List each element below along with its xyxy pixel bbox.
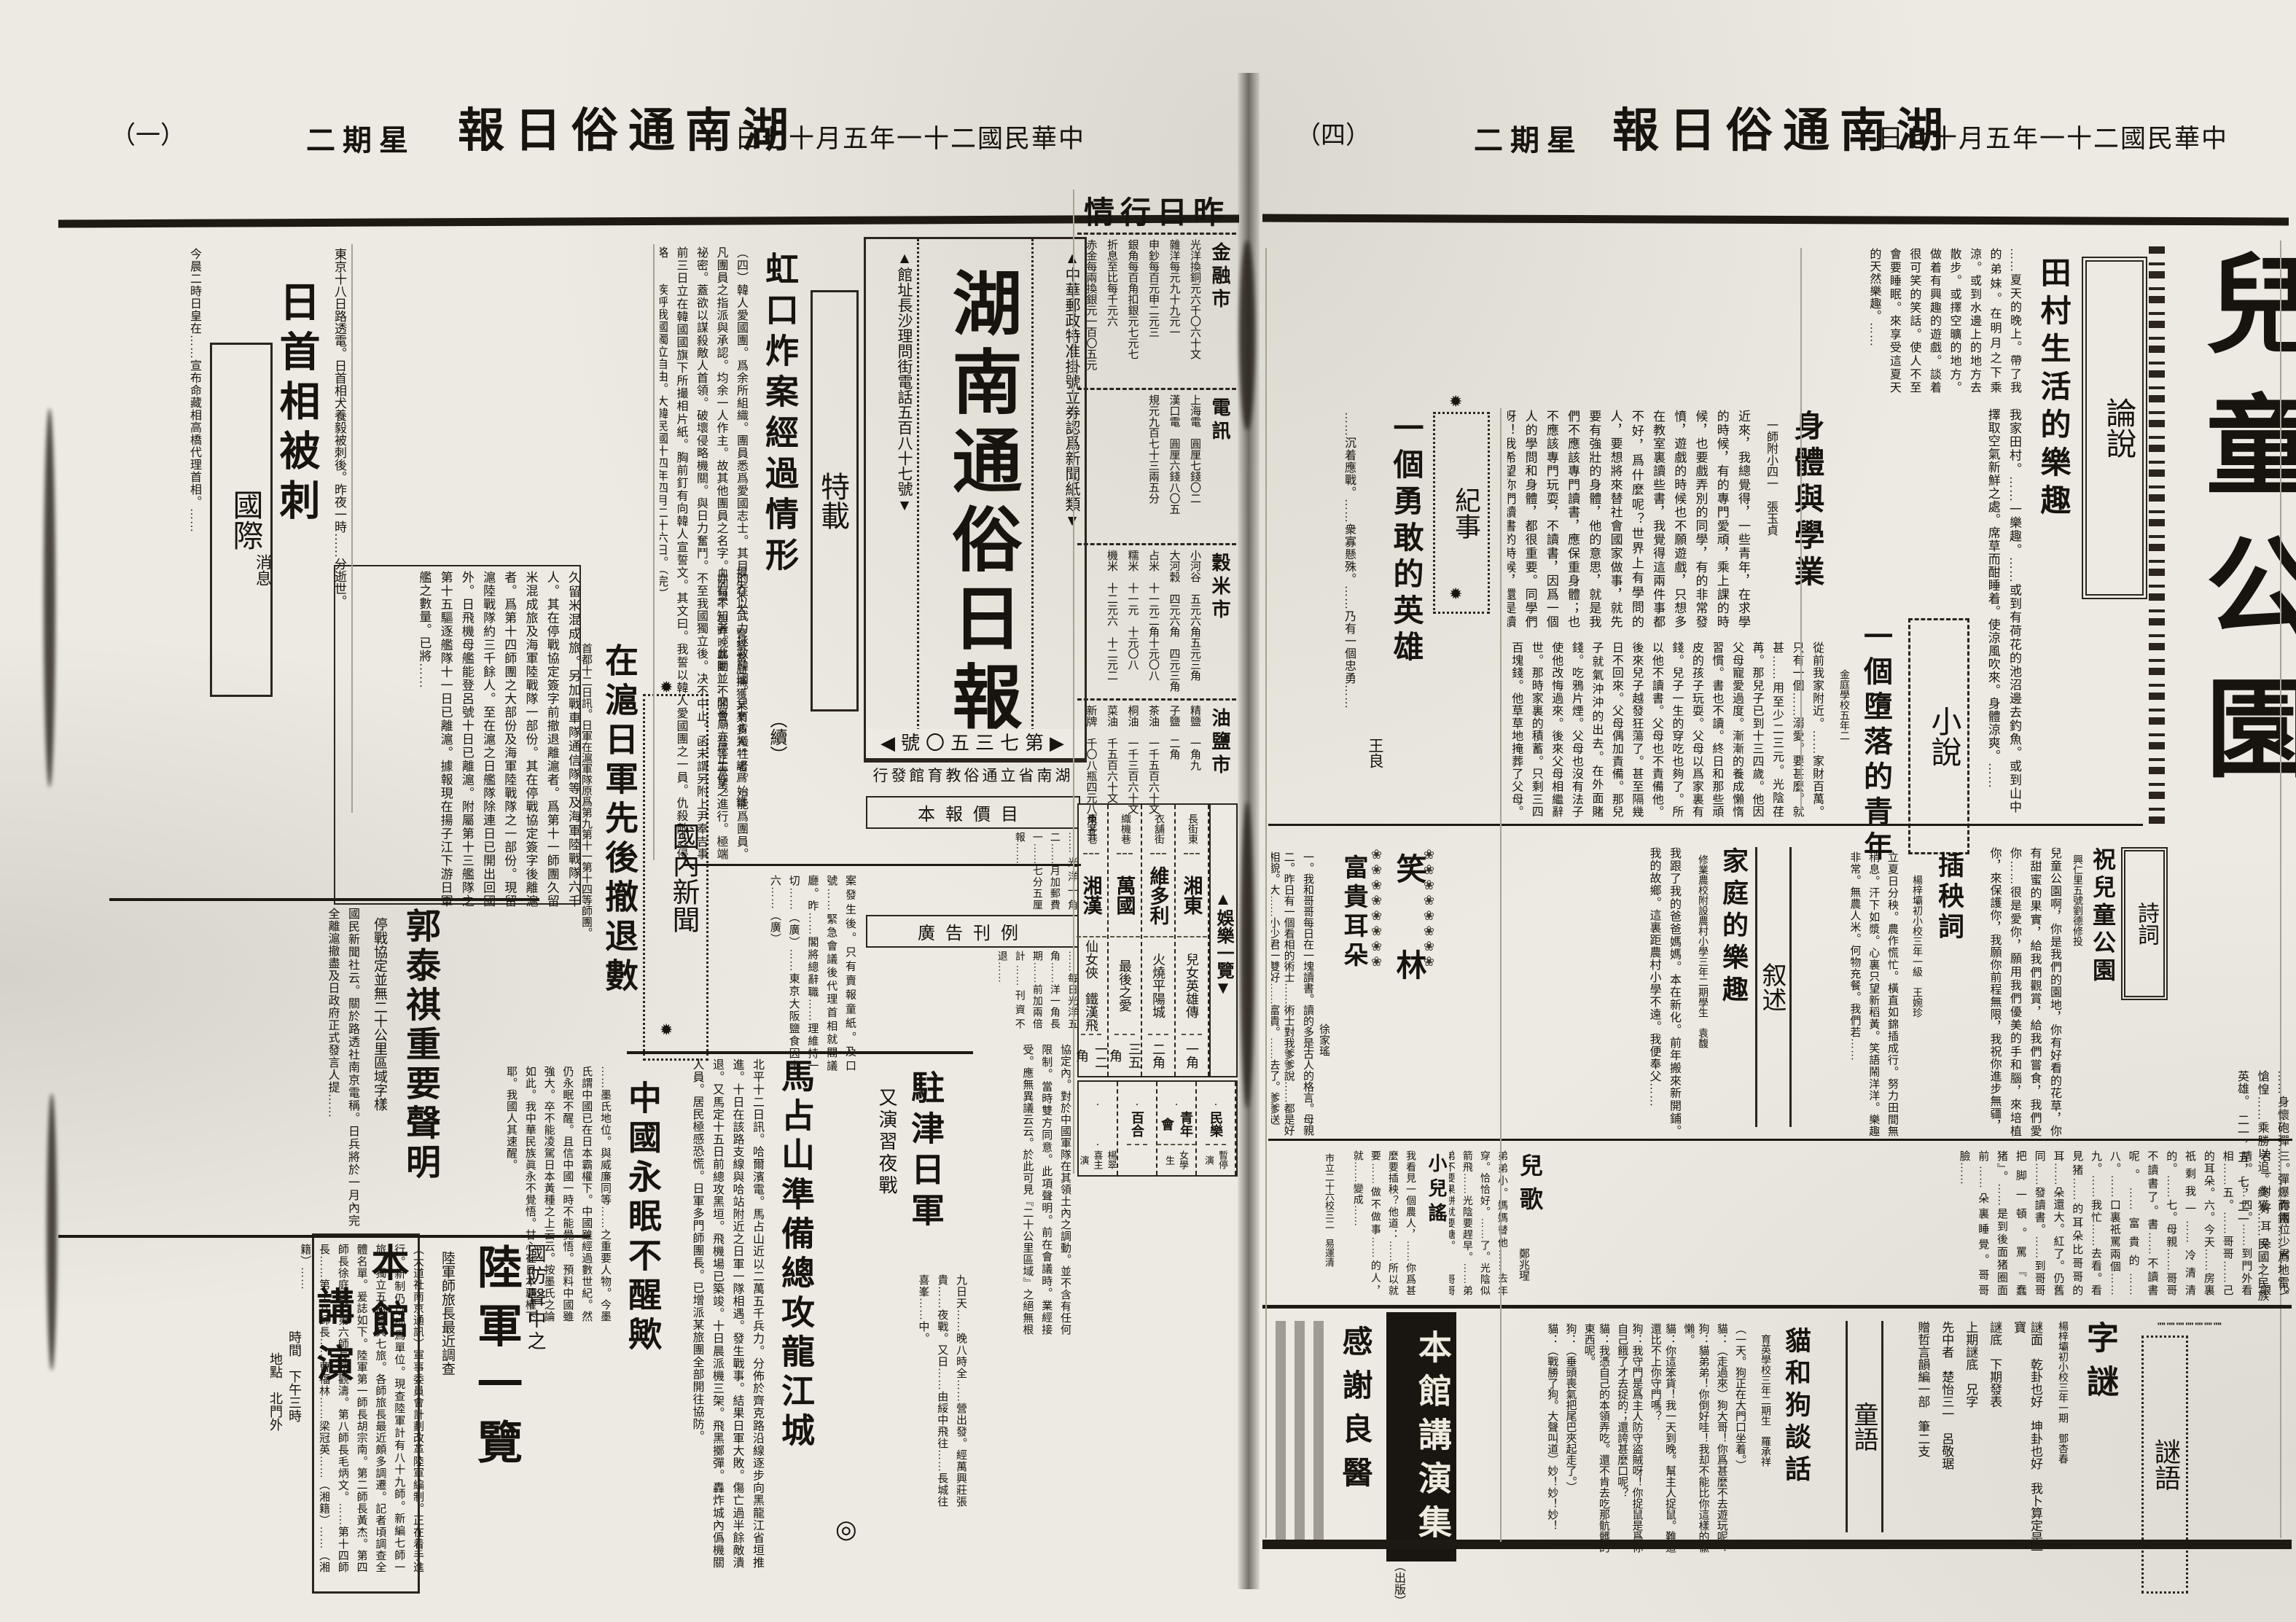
body-fallen-youth: 從前我家附近。……家財百萬。只有一個……溺愛。要甚麼。就甚……用至少二三元。光陰… <box>1507 642 1827 818</box>
masthead-issue-number: ◀號〇五三七第▶ <box>864 729 1087 760</box>
masthead-publisher: 行發館育教俗通立省南湖 <box>864 764 1082 786</box>
fold-smudge <box>1239 241 1255 430</box>
divider <box>1268 824 2143 826</box>
author-body-and-study: 一師附小四一 張玉貞 <box>1760 419 1778 631</box>
subhead-guo-taiqi: 停戰協定並無二十公里區域字樣 <box>368 917 388 1223</box>
lecture-time: 時間 下午三時 <box>285 1330 304 1584</box>
section-box-poetry: 詩詞 <box>2121 847 2168 1000</box>
divider <box>684 864 1081 866</box>
divider <box>109 898 539 901</box>
market-sections: 金融市 光洋換銅元六千〇六十文雜洋每元九十九元一申鈔每百元申二元三銀角每百角扣銀… <box>1077 233 1236 854</box>
section-box-child-talk: 童語 <box>1846 1321 1883 1532</box>
dialogue-line: 貓：（走過來）狗大哥！你爲甚麼不去遊玩呢？ <box>1714 1323 1729 1560</box>
market-section: 電訊 上海電 圓厘七錢〇二漢口電 圓厘六錢八〇五規元九百七十三兩五分 <box>1077 388 1236 543</box>
market-section-items: 光洋換銅元六千〇六十文雜洋每元九十九元一申鈔每百元申二元三銀角每百角扣銀元七元七… <box>1079 239 1205 383</box>
column-rule <box>1800 248 1802 813</box>
body-village-life-top: ……夏天的晚上。帶了我的弟妹。在明月之下乘涼。或到水邊上的地方去散步。或擇空曠的… <box>1270 248 2024 394</box>
divider <box>1268 1139 2292 1141</box>
lecture-place: 地點 北門外 <box>266 1352 285 1584</box>
humor-item: 二。昨日有一個看相的術士……術士對我爹爹說……都是好相貌。大……小少君一雙好……… <box>1271 851 1296 1137</box>
body-guo-taiqi-cont: 協定內。對於中國軍隊在其領土內之調動。並不含有任何限制。當時雙方同意。此項聲明。… <box>1017 1044 1074 1336</box>
headline-guo-taiqi-statement: 郭泰祺重要聲明 <box>394 908 445 1228</box>
show-title: 火燒平陽城 <box>1148 937 1168 1035</box>
market-section-label: 電訊 <box>1205 394 1235 539</box>
headline-character-riddle: 字謎 <box>2076 1321 2123 1423</box>
lecture-collection-ad: 本館講演集 <box>1386 1312 1456 1561</box>
dialogue-line: 狗：貓弟弟！你倒好哇！我却不能比你這樣的偸懶。 <box>1681 1323 1711 1560</box>
body-rice-planting-song: 立夏日分秧。農作慌忙。橫直如錦插成行。努力田間無稍息。汗下如漿。心裏只望新稻黃。… <box>1835 851 1901 1137</box>
venue-name: 青年會 <box>1157 1105 1196 1145</box>
headline-cat-dog-dialogue: 貓和狗談話 <box>1777 1327 1815 1575</box>
section-box-novel: 小說 <box>1908 618 1969 854</box>
riddle-lines: 謎面 乾卦也好 坤卦也好 我卜算定是一寶謎底 下期發表上期謎底 兄字先中者 楚怡… <box>1886 1321 2043 1558</box>
headline-hongkou-bomb-case: 虹口炸案經過情形 <box>755 252 803 703</box>
body-family-joy: 我跟了我的爸爸媽媽。本在新化。前年搬來新開鋪。我的故鄉。這裏距農村小學不遠。我便… <box>1510 847 1684 1137</box>
notice-block: 本報價目 ……光洋一角二……月加郵費一……七分五厘報…… 廣告刊例 ……每日光洋… <box>866 796 1080 1029</box>
column-rule <box>653 244 655 860</box>
lecture-title-b: 講演 <box>304 1287 359 1584</box>
market-section-items: 上海電 圓厘七錢〇二漢口電 圓厘六錢八〇五規元九百七十三兩五分 <box>1079 394 1205 539</box>
section-box-international: 國際 <box>210 343 273 697</box>
right-margin-rule <box>2280 241 2281 1538</box>
page-section-title-children-park: 兒童公園 <box>2171 248 2296 831</box>
show-title: 暫停演 <box>1201 1145 1230 1175</box>
body-guo-taiqi: 國民新聞社云。關於路透社南京電稱。日兵將於一月內完全離滬撤盡及日政府正式發言人提… <box>111 908 362 1227</box>
body-cat-dog-dialogue: （一天。狗正在大門口坐着。）貓：（走過來）狗大哥！你爲甚麼不去遊玩呢？狗：貓弟弟… <box>1510 1323 1747 1560</box>
edge-smudge <box>44 408 55 787</box>
headline-body-and-study: 身體與學業 <box>1784 410 1829 621</box>
masthead-address: ▲館址長沙理問街電話五百八十七號▼ <box>866 239 919 760</box>
show-title <box>1136 1145 1138 1175</box>
dialogue-line: 狗：我守門是爲主人防守盜賊呀！你捉鼠是爲你自己餓了才去捉的；還誇甚麼口呢？ <box>1614 1323 1644 1560</box>
headline-brave-hero: 一個勇敢的英雄 <box>1383 412 1428 755</box>
headline-hongkou-cont-mark: （續） <box>764 711 789 769</box>
humor-item: 一。我和哥哥每日在一塊讀書。讀的多是古人的格言。母親買得有糖果。誰的書先讀熟了。… <box>1299 851 1315 1137</box>
flower-ornament-icon: ❀❀❀❀❀❀❀❀ <box>1369 847 1385 1124</box>
divider <box>627 1051 973 1054</box>
body-childrens-rhyme: 我看見一個農人，……你爲甚麼要插秧？他道：……所以就要……做不做事……的人，就…… <box>1340 1150 1418 1296</box>
section-box-narrative: 叙述 <box>1755 847 1792 1127</box>
body-japan-pm: 今晨二時日皇在……宣布命藏相高橋代理首相。…… <box>109 248 204 813</box>
notice-ad-title: 廣告刊例 <box>866 915 1080 948</box>
left-date-line: 日七十月五年一十二國民華中 <box>735 118 1085 155</box>
venue-street <box>1176 1082 1177 1105</box>
market-report: 情行日昨 金融市 光洋換銅元六千〇六十文雜洋每元九十九元一申鈔每百元申二元三銀角… <box>1077 188 1236 854</box>
section-box-tezai: 特載 <box>811 290 859 711</box>
gear-ornament-icon: ✹ <box>660 1021 673 1040</box>
body-brave-hero: ……沉着應戰。……衆寡懸殊。……乃有一個忠勇…… <box>1270 412 1359 814</box>
author-childrens-song: 鄭兆瑆 <box>1516 1248 1531 1299</box>
riddle-line: 先中者 楚怡三一 呂敬琚 <box>1937 1321 1954 1558</box>
notice-price-title: 本報價目 <box>866 796 1080 829</box>
body-tokyo-unrest: 損失不大。警察當局捕獲某某多人。認爲『鐵血同盟』與昨晚暴動……交易廟亦停止營業。 <box>714 567 749 808</box>
riddle-line: 上期謎底 兄字 <box>1961 1321 1978 1558</box>
subhead-army-overview: 陸軍師旅長最近調查 <box>437 1251 456 1521</box>
right-date-line: 日七十月五年一十二國民華中 <box>1878 118 2228 155</box>
entertainment-table-row2: 民樂 暫停演 青年會 女學生 百合 楊翠喜主演 <box>1077 1080 1238 1177</box>
riddle-line: 謎底 下期發表 <box>1985 1321 2002 1558</box>
body-shanghai-withdrawal: 久留米混成旅。另加戰車隊通信隊等及海軍陸戰隊六千人。其在停戰協定簽字前撤退離滬者… <box>335 566 588 912</box>
headline-rice-planting-song: 插秧詞 <box>1930 851 1968 961</box>
byline-ode-to-park: 興仁里五號劉德修投 <box>2067 854 2083 1058</box>
dot-line-ornament: ┉┉┉┉┉┉┉ <box>2158 1317 2223 1332</box>
market-section-label: 金融市 <box>1205 239 1235 383</box>
lecture-collection-pub-mark: （出版） <box>1389 1560 1407 1604</box>
fold-smudge <box>1241 802 1254 1108</box>
author-rich-ears: 徐家瑤 <box>1316 1024 1332 1104</box>
entertainment-column: 民樂 暫停演 <box>1197 1082 1236 1175</box>
venue-name: 湘漢 <box>1077 854 1106 937</box>
headline-childrens-song: 兒歌 <box>1513 1153 1547 1241</box>
headline-village-life: 田村生活的樂趣 <box>2031 257 2075 665</box>
body-rich-ears: 一。我和哥哥每日在一塊讀書。讀的多是古人的格言。母親買得有糖果。誰的書先讀熟了。… <box>1268 851 1315 1137</box>
headline-shanghai-withdrawal: 在滬日軍先後撤退數 <box>595 643 643 1062</box>
author-family-joy: 修業農校附設農村小學三年二期學生 袁馥 <box>1690 854 1709 1124</box>
venue-street <box>1136 1082 1138 1105</box>
gear-ornament-icon: ✹ <box>1449 585 1462 604</box>
dialogue-line: 狗：（垂頭喪氣把尾巴夾起走了。） <box>1563 1323 1577 1560</box>
body-assassination-aftermath: 案發生後。只有賣報童紙。及口號……緊急會議後代理首相就閣議廳。昨……閣將總辭職…… <box>684 875 859 1072</box>
venue-street <box>1097 1082 1098 1105</box>
edge-smudge <box>47 1093 57 1370</box>
venue-name: 湘東 <box>1177 854 1207 937</box>
show-title: 兒女英雄傳 <box>1182 937 1202 1035</box>
headline-family-joy: 家庭的樂趣 <box>1714 847 1752 1124</box>
headline-army-overview: 陸軍一覽 <box>462 1244 528 1492</box>
divider <box>1262 1305 2292 1309</box>
show-title: 楊翠喜主演 <box>1077 1145 1120 1175</box>
author-cat-dog-dialogue: 育英學校三年二期生 羅承祥 <box>1752 1334 1771 1567</box>
illegible-text-columns <box>1271 1321 1324 1540</box>
body-rich-ears-cont: 三。……你兩位少君……少君一對好耳朵……眼睛。……四。……到門外看相……五。……… <box>1542 1150 2292 1296</box>
section-box-riddles: 謎語 <box>2141 1336 2188 1594</box>
headline-thanks-doctor: 感謝良醫 <box>1332 1325 1377 1566</box>
column-rule <box>1500 408 1502 1542</box>
left-weekday: 二期星 <box>306 117 415 159</box>
venue-name <box>1097 1105 1098 1145</box>
right-weekday: 二期星 <box>1474 117 1583 159</box>
lecture-title-a: 本館 <box>359 1243 413 1584</box>
headline-tianjin-japanese-troops: 駐津日軍 <box>901 1070 949 1252</box>
section-box-record: 紀事 <box>1433 412 1490 614</box>
show-title: 女學生 <box>1162 1145 1191 1175</box>
masthead-box: ▲館址長沙理問街電話五百八十七號▼ 湖南通俗日報 ▲中華郵政特准掛號立券認爲新聞… <box>864 237 1087 763</box>
right-page-number: （四） <box>1296 115 1370 151</box>
headline-childrens-rhyme: 小兒謠 <box>1423 1153 1450 1255</box>
masthead-title: 湖南通俗日報 <box>919 239 1031 760</box>
venue-name: 民樂 <box>1206 1105 1226 1145</box>
headline-ma-zhanshan: 馬占山準備總攻龍江城 <box>771 1058 819 1467</box>
box-shanghai-withdrawal: 久留米混成旅。另加戰車隊通信隊等及海軍陸戰隊六千人。其在停戰協定簽字前撤退離滬者… <box>334 565 581 905</box>
market-title: 情行日昨 <box>1077 188 1236 233</box>
market-section-items: 精鹽 一角九子鹽 二角茶油 一千五百六十文桐油 一千三百六十文菜油 千五百六十文… <box>1079 705 1205 849</box>
headline-ode-to-park: 祝兒童公園 <box>2086 847 2120 1022</box>
notice-ad-body: ……每日光洋五角……洋一角長期……前加兩倍計……刊資不退…… <box>866 951 1080 1029</box>
section-label-humor: 笑林 <box>1386 853 1431 1115</box>
entertainment-column: 楊翠喜主演 <box>1079 1082 1118 1175</box>
dialogue-line: （一天。狗正在大門口坐着。） <box>1733 1323 1747 1560</box>
dialogue-line: 貓：你這笨貨！我一天到晚。幫主人捉鼠。難道還比不上你守門嗎？ <box>1648 1323 1678 1560</box>
market-section-items: 小河谷 五元六角五元三角大河穀 四元六角 四元三角占米 十一元二角十元〇八糯米 … <box>1079 550 1205 694</box>
entertainment-column: 百合 <box>1118 1082 1157 1175</box>
market-section-label: 穀米市 <box>1205 550 1235 694</box>
ticket-price: 三五角 <box>1105 1035 1144 1076</box>
dialogue-line: 貓：我憑自己的本領弄吃。還不肯去吃那骯髒的東西呢。 <box>1582 1323 1612 1560</box>
ticket-price: 一角 <box>1182 1035 1202 1076</box>
dialogue-line: 貓：（戰勝了狗。大聲叫道）妙！妙！妙！ <box>1545 1323 1559 1560</box>
section-box-editorial: 論說 <box>2082 257 2147 599</box>
show-title: 仙女俠 鐵漢飛 <box>1081 937 1101 1035</box>
venue-name: 維多利 <box>1144 854 1174 937</box>
author-childrens-rhyme: 市立二十六校三二 易運清 <box>1319 1153 1335 1296</box>
notice-price-body: ……光洋一角二……月加郵費一……七分五厘報…… <box>866 832 1080 911</box>
ticket-price: 二角 <box>1148 1035 1168 1076</box>
subhead-tianjin-night-drill: 又演習夜戰 <box>873 1088 900 1255</box>
author-character-riddle: 楊梓壩初小校三年一期 鄧杏春 <box>2050 1321 2069 1554</box>
author-rice-planting-song: 楊梓壩初小校三年一級 王婉珍 <box>1905 875 1923 1123</box>
venue-street <box>1215 1082 1217 1105</box>
left-header-rule <box>58 214 1239 227</box>
right-header-rule <box>1262 214 2289 226</box>
venue-name: 萬國 <box>1110 854 1140 937</box>
gear-ornament-icon: ✹ <box>1449 392 1462 411</box>
market-section: 油鹽市 精鹽 一角九子鹽 二角茶油 一千五百六十文桐油 一千三百六十文菜油 千五… <box>1077 698 1236 854</box>
newspaper-scan: （一） 二期星 報日俗通南湖 日七十月五年一十二國民華中 （四） 二期星 報日俗… <box>0 0 2296 1622</box>
headline-japan-pm-assassinated: 日首相被刺 <box>267 281 326 631</box>
body-body-and-study: 近來，我總覺得，一些青年，在求學的時候，有的專門愛頑，乘上課的時候，也要戲弄別的… <box>1507 410 1754 628</box>
headline-rich-ears: 富貴耳朵 <box>1335 854 1371 1022</box>
venue-name: 百合 <box>1127 1105 1147 1145</box>
show-title: 最後之愛 <box>1114 937 1135 1035</box>
market-section: 金融市 光洋換銅元六千〇六十文雜洋每元九十九元一申鈔每百元申二元三銀角每百角扣銀… <box>1077 233 1236 388</box>
lecture-notice-box: 本館 講演 時間 下午三時 地點 北門外 <box>312 1233 420 1594</box>
left-page-number: （一） <box>111 115 185 151</box>
body-tianjin-japanese-troops: 九日天……晚八時全……營出發。經萬興莊張貴……夜戰。又日……由綏中飛往……長城往… <box>831 1274 969 1508</box>
market-section: 穀米市 小河谷 五元六角五元三角大河穀 四元六角 四元三角占米 十一元二角十元〇… <box>1077 543 1236 698</box>
author-brave-hero: 王良 <box>1364 738 1386 796</box>
body-ma-zhanshan: 北平十二日訊。哈爾濱電。馬占山近以二萬五千兵力。分佈於齊克路沿線逐步向黑龍江省垣… <box>631 1058 767 1569</box>
riddle-line: 贈哲言韻編一部 筆二支 <box>1913 1321 1930 1558</box>
column-rule <box>1265 248 1267 1538</box>
divider <box>58 1235 590 1238</box>
body-ode-to-park: 兒童公園啊，你是我們的園地，你有好看的花草，你有甜蜜的果實，給我們觀賞，給我們嘗… <box>1962 847 2064 1137</box>
circle-mark-icon: ◎ <box>835 1515 857 1544</box>
entertainment-column: 青年會 女學生 <box>1157 1082 1197 1175</box>
author-fallen-youth: 金庭學校五年二 <box>1832 669 1850 771</box>
riddle-line: 謎面 乾卦也好 坤卦也好 我卜算定是一寶 <box>2010 1321 2043 1558</box>
market-section-label: 油鹽市 <box>1205 705 1235 849</box>
column-rule <box>351 244 353 813</box>
right-bottom-rule <box>1262 1540 2292 1549</box>
column-rule <box>1073 190 1074 1174</box>
meander-ornament <box>2149 241 2165 824</box>
